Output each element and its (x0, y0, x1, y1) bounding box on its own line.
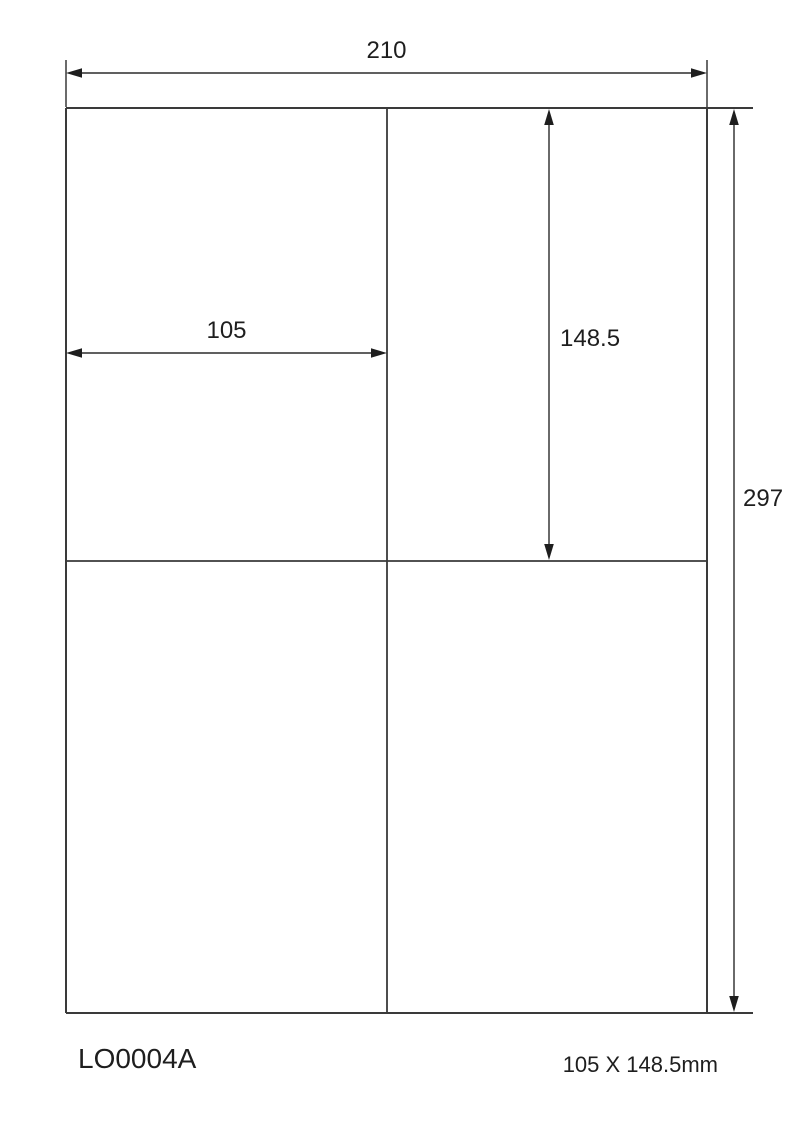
arrowhead-top-label-height (544, 109, 554, 125)
label-size-text: 105 X 148.5mm (66, 1052, 718, 1078)
arrowhead-right-label-width (371, 348, 387, 358)
arrowhead-left-label-width (66, 348, 82, 358)
dimension-label-sheet-height: 297 (743, 486, 783, 512)
arrowhead-bottom-sheet-height (729, 996, 739, 1012)
dimension-label-label-height: 148.5 (560, 326, 620, 352)
dimension-label-label-width: 105 (66, 318, 387, 344)
dimension-label-sheet-width: 210 (66, 38, 707, 64)
arrowhead-right-sheet-width (691, 68, 707, 78)
arrowhead-left-sheet-width (66, 68, 82, 78)
label-sheet-diagram: 210 105 148.5 297 LO0004A 105 X 148.5mm (0, 0, 796, 1124)
arrowhead-top-sheet-height (729, 109, 739, 125)
diagram-drawing (0, 0, 796, 1124)
arrowhead-bottom-label-height (544, 544, 554, 560)
